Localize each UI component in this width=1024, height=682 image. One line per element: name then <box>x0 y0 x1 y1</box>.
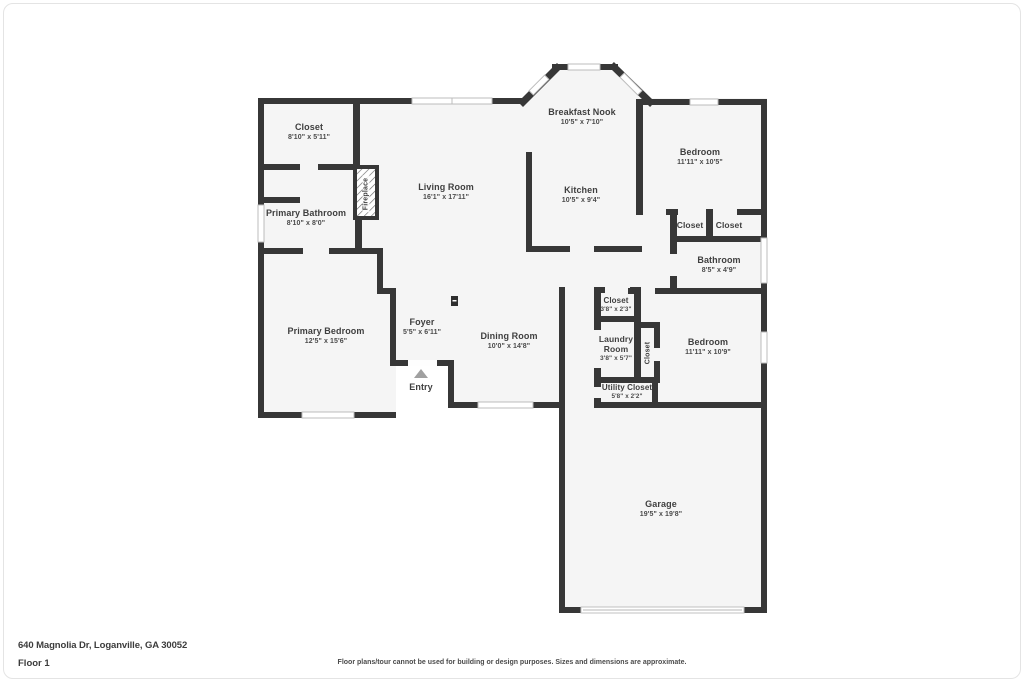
room-label-entry: Entry <box>409 382 433 393</box>
room-label-bedroom-top: Bedroom 11'11" x 10'5" <box>677 147 723 167</box>
room-dims: 10'5" x 9'4" <box>562 197 600 205</box>
room-label-closet-bedroom-right: Closet <box>716 220 743 230</box>
room-dims: 16'1" x 17'11" <box>418 194 474 202</box>
room-name: Closet <box>645 342 652 365</box>
room-label-bedroom-right: Bedroom 11'11" x 10'9" <box>685 337 731 357</box>
room-name: Foyer <box>403 317 441 328</box>
room-label-primary-bathroom: Primary Bathroom 8'10" x 8'0" <box>266 208 346 228</box>
room-label-closet-bedroom-left: Closet <box>677 220 704 230</box>
footer-disclaimer: Floor plans/tour cannot be used for buil… <box>0 659 1024 666</box>
room-name: Garage <box>640 499 682 510</box>
room-name: Kitchen <box>562 185 600 196</box>
room-name: Closet <box>677 220 704 230</box>
room-dims: 5'5" x 6'11" <box>403 329 441 337</box>
room-name: Utility Closet <box>602 383 652 392</box>
room-label-closet-hall: Closet 3'8" x 2'3" <box>600 296 631 314</box>
garage-door <box>581 607 744 613</box>
room-label-closet-top-left: Closet 8'10" x 5'11" <box>288 122 330 142</box>
room-dims: 8'10" x 5'11" <box>288 134 330 142</box>
room-dims: 19'5" x 19'8" <box>640 511 682 519</box>
footer-address: 640 Magnolia Dr, Loganville, GA 30052 <box>18 640 187 651</box>
room-dims: 11'11" x 10'9" <box>685 349 731 357</box>
foyer-symbol <box>451 296 458 306</box>
room-label-breakfast-nook: Breakfast Nook 10'5" x 7'10" <box>548 107 615 127</box>
room-label-primary-bedroom: Primary Bedroom 12'5" x 15'6" <box>287 326 364 346</box>
room-dims: 10'0" x 14'8" <box>480 343 537 351</box>
room-dims: 3'8" x 5'7" <box>590 355 642 363</box>
room-dims: 8'5" x 4'9" <box>697 267 740 275</box>
room-name: Entry <box>409 382 433 393</box>
room-name: Primary Bedroom <box>287 326 364 337</box>
room-dims: 8'10" x 8'0" <box>266 220 346 228</box>
room-name: Bathroom <box>697 255 740 266</box>
room-name: Bedroom <box>677 147 723 158</box>
room-name: Bedroom <box>685 337 731 348</box>
room-label-utility-closet: Utility Closet 5'8" x 2'2" <box>602 383 652 401</box>
room-dims: 10'5" x 7'10" <box>548 119 615 127</box>
room-label-living-room: Living Room 16'1" x 17'11" <box>418 182 474 202</box>
room-name: Closet <box>600 296 631 305</box>
room-name: Primary Bathroom <box>266 208 346 219</box>
room-label-kitchen: Kitchen 10'5" x 9'4" <box>562 185 600 205</box>
room-name: Fireplace <box>363 178 370 211</box>
room-label-dining-room: Dining Room 10'0" x 14'8" <box>480 331 537 351</box>
room-name: Dining Room <box>480 331 537 342</box>
room-label-garage: Garage 19'5" x 19'8" <box>640 499 682 519</box>
room-name: Closet <box>288 122 330 133</box>
room-label-laundry-room: Laundry Room 3'8" x 5'7" <box>590 334 642 363</box>
room-name: Closet <box>716 220 743 230</box>
room-dims: 11'11" x 10'5" <box>677 159 723 167</box>
room-label-closet-bedroom2: Closet <box>645 342 652 365</box>
room-name: Breakfast Nook <box>548 107 615 118</box>
room-name: Living Room <box>418 182 474 193</box>
room-label-foyer: Foyer 5'5" x 6'11" <box>403 317 441 337</box>
room-dims: 12'5" x 15'6" <box>287 338 364 346</box>
room-dims: 3'8" x 2'3" <box>600 306 631 313</box>
entry-door-opening <box>408 360 437 366</box>
room-label-bathroom: Bathroom 8'5" x 4'9" <box>697 255 740 275</box>
floor-plan-canvas: Closet 8'10" x 5'11" Primary Bathroom 8'… <box>0 0 1024 682</box>
room-name: Laundry Room <box>590 334 642 354</box>
room-label-fireplace: Fireplace <box>363 176 370 213</box>
room-dims: 5'8" x 2'2" <box>602 393 652 400</box>
